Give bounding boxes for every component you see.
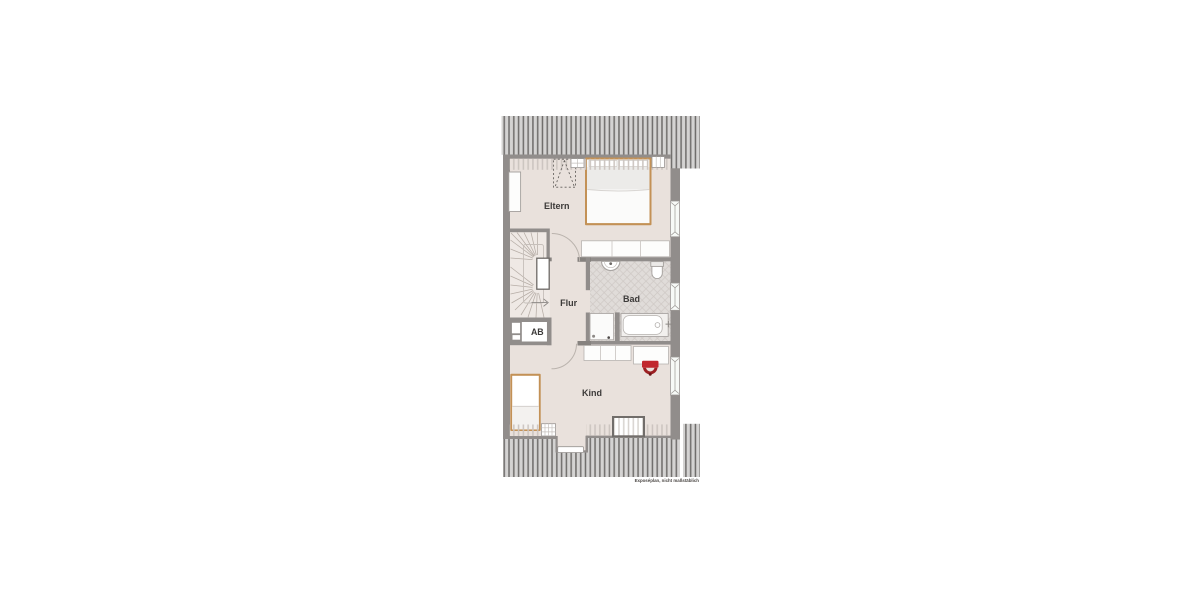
svg-text:Kind: Kind [582,388,602,398]
svg-text:Exposéplan, nicht maßstäblich: Exposéplan, nicht maßstäblich [635,478,700,483]
svg-text:Flur: Flur [560,298,577,308]
svg-text:AB: AB [531,327,544,337]
svg-text:Eltern: Eltern [544,201,570,211]
svg-text:Bad: Bad [623,294,640,304]
